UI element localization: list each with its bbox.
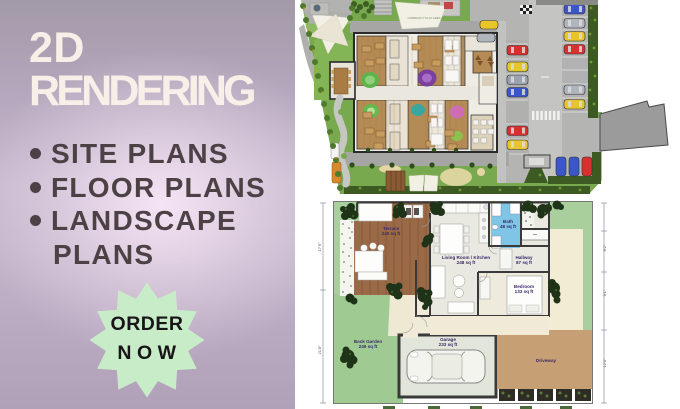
svg-text:12'0": 12'0" [602, 358, 607, 367]
svg-text:17'6": 17'6" [318, 242, 322, 251]
svg-text:9'1": 9'1" [602, 289, 607, 296]
svg-text:249 sq ft: 249 sq ft [359, 344, 378, 349]
svg-text:COMMUNITY PLAY AREA: COMMUNITY PLAY AREA [407, 16, 440, 20]
svg-text:48 sq ft: 48 sq ft [500, 224, 517, 229]
svg-text:133 sq ft: 133 sq ft [515, 289, 534, 294]
svg-text:240 sq ft: 240 sq ft [382, 231, 401, 236]
svg-text:248 sq ft: 248 sq ft [457, 260, 476, 265]
svg-text:87 sq ft: 87 sq ft [516, 260, 533, 265]
svg-text:233 sq ft: 233 sq ft [439, 342, 458, 347]
svg-text:21'8": 21'8" [318, 345, 322, 354]
svg-text:Driveway: Driveway [536, 358, 557, 363]
svg-text:8'2": 8'2" [602, 244, 607, 251]
